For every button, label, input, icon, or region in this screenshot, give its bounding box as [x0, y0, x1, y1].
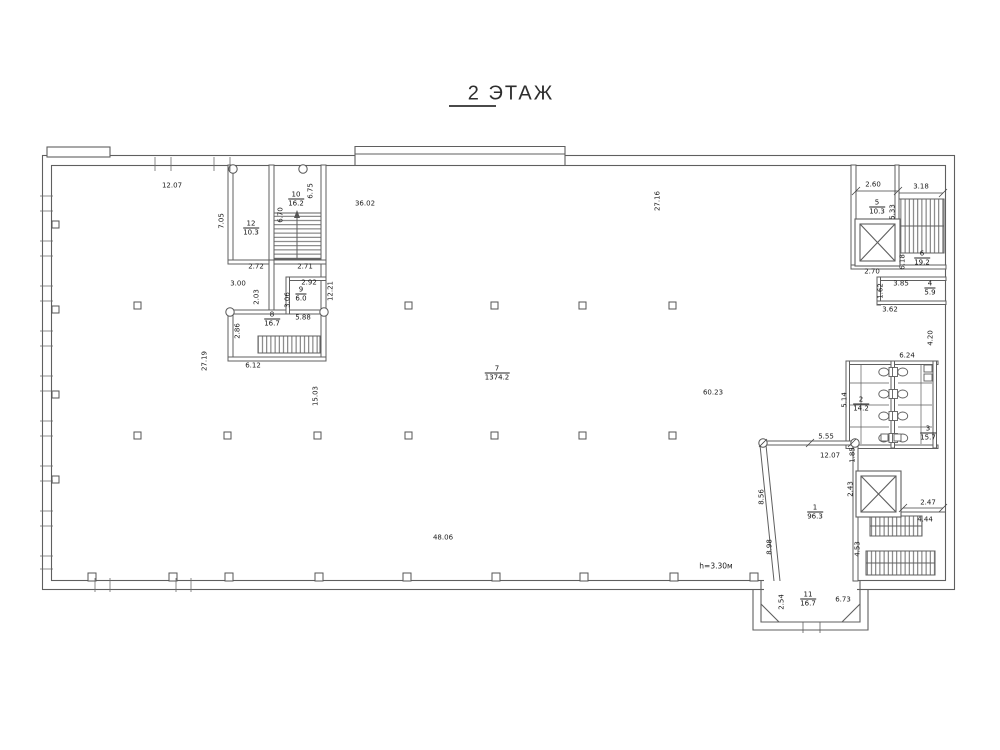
- dimension-label: 6.12: [245, 363, 261, 370]
- room-label-12: 1210.3: [243, 220, 259, 237]
- room-label-2: 214.2: [853, 396, 869, 413]
- dimension-label: 48.06: [433, 535, 453, 542]
- dimension-label: 3.00: [230, 281, 246, 288]
- dimension-label-vertical: 27.16: [655, 191, 662, 211]
- dimension-label-vertical: 5.33: [890, 204, 897, 220]
- dimension-label: 2.70: [864, 269, 880, 276]
- dimension-label-vertical: 7.05: [219, 213, 226, 229]
- dimension-label-vertical: 27.19: [202, 351, 209, 371]
- dimension-label-vertical: 4.20: [928, 330, 935, 346]
- dimension-label-vertical: 6.18: [900, 254, 907, 270]
- dimension-label-vertical: 3.06: [285, 292, 292, 308]
- dimension-label-vertical: 2.86: [235, 323, 242, 339]
- room-label-11: 1116.7: [800, 591, 816, 608]
- dimension-label-vertical: 5.14: [842, 392, 849, 408]
- dimension-label-vertical: 8.98: [767, 539, 774, 555]
- room-label-3: 315.7: [920, 425, 936, 442]
- labels-layer: 12.0736.022.603.182.703.853.626.242.722.…: [0, 0, 1000, 750]
- dimension-label: 4.44: [917, 517, 933, 524]
- dimension-label-vertical: 12.21: [328, 281, 335, 301]
- room-label-10: 1016.2: [288, 191, 304, 208]
- dimension-label: 60.23: [703, 390, 723, 397]
- dimension-label: 3.85: [893, 281, 909, 288]
- room-label-6: 619.2: [914, 250, 930, 267]
- dimension-label: 5.55: [818, 434, 834, 441]
- dimension-label: 2.72: [248, 264, 264, 271]
- dimension-label-vertical: 15.03: [313, 386, 320, 406]
- dimension-label: 2.60: [865, 182, 881, 189]
- dimension-label-vertical: 6.70: [278, 207, 285, 223]
- room-label-1: 196.3: [807, 504, 823, 521]
- dimension-label-vertical: 2.54: [779, 594, 786, 610]
- floor-plan-page: 2 ЭТАЖ: [0, 0, 1000, 750]
- dimension-label: 6.24: [899, 353, 915, 360]
- room-label-7: 71374.2: [485, 365, 510, 382]
- dimension-label: 3.18: [913, 184, 929, 191]
- dimension-label: 36.02: [355, 201, 375, 208]
- dimension-label: 2.47: [920, 500, 936, 507]
- floor-height-note: h=3.30м: [699, 562, 732, 571]
- dimension-label-vertical: 1.85: [850, 447, 857, 463]
- room-label-8: 816.7: [264, 311, 280, 328]
- dimension-label-vertical: 2.03: [254, 289, 261, 305]
- dimension-label-vertical: 4.53: [855, 541, 862, 557]
- dimension-label: 12.07: [162, 183, 182, 190]
- dimension-label: 2.71: [297, 264, 313, 271]
- dimension-label-vertical: 1.62: [878, 283, 885, 299]
- room-label-5: 510.3: [869, 199, 885, 216]
- room-label-4: 45.9: [924, 280, 935, 297]
- dimension-label: 3.62: [882, 307, 898, 314]
- room-label-9: 96.0: [295, 286, 306, 303]
- dimension-label: 5.88: [295, 315, 311, 322]
- dimension-label-vertical: 2.43: [848, 481, 855, 497]
- dimension-label: 6.73: [835, 597, 851, 604]
- dimension-label-vertical: 6.75: [308, 183, 315, 199]
- dimension-label: 12.07: [820, 453, 840, 460]
- dimension-label-vertical: 8.56: [759, 489, 766, 505]
